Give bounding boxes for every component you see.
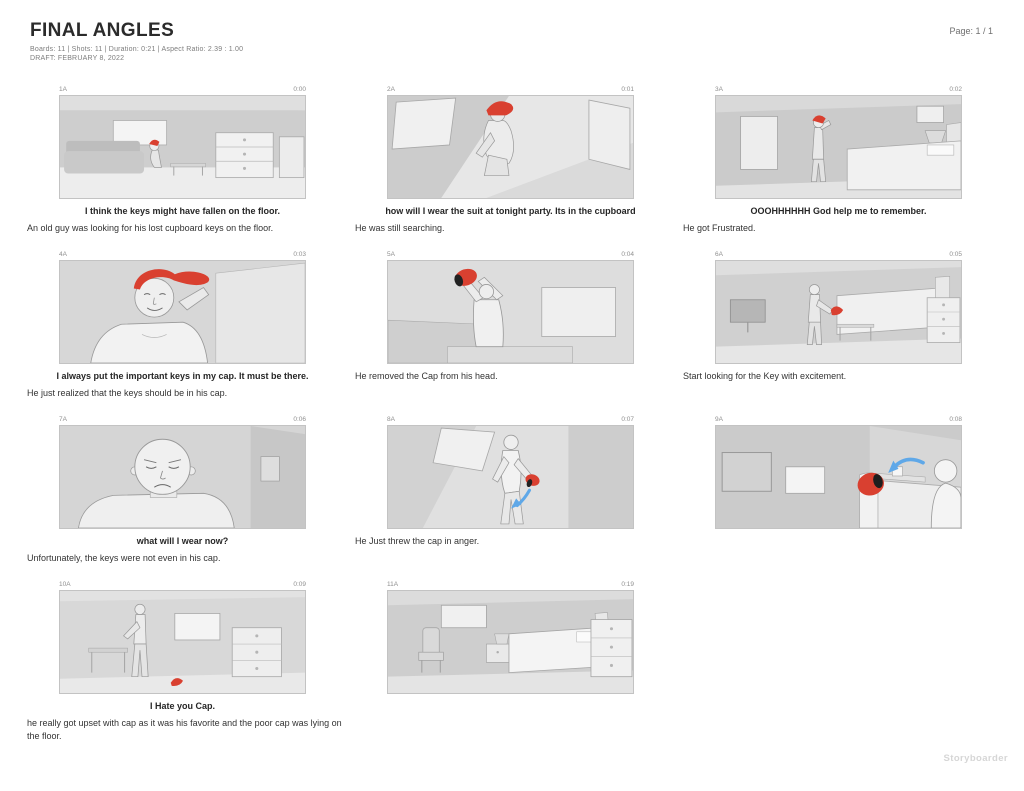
board-metadata: Boards: 11 | Shots: 11 | Duration: 0:21 …: [30, 46, 243, 53]
shot-timecode: 0:07: [621, 416, 634, 423]
board-1a: 1A 0:00: [27, 86, 355, 251]
page-number: Page: 1 / 1: [949, 26, 993, 36]
shot-label: 1A: [59, 86, 67, 93]
dialogue-text: I think the keys might have fallen on th…: [27, 206, 338, 216]
page-header: FINAL ANGLES Boards: 11 | Shots: 11 | Du…: [30, 20, 243, 62]
storyboard-frame: [387, 425, 634, 529]
frame-drawing-looking-for-key: [716, 261, 961, 363]
frame-drawing-closeup-cap: [60, 261, 305, 363]
shot-timecode: 0:01: [621, 86, 634, 93]
board-5a: 5A 0:04 He removed the Cap from his head…: [355, 251, 683, 416]
storyboard-frame: [59, 95, 306, 199]
shot-timecode: 0:08: [949, 416, 962, 423]
board-head: 4A 0:03: [59, 251, 306, 260]
board-head: 2A 0:01: [387, 86, 634, 95]
board-4a: 4A 0:03 I always put the important keys …: [27, 251, 355, 416]
action-text: Start looking for the Key with excitemen…: [683, 370, 1005, 383]
board-head: 10A 0:09: [59, 581, 306, 590]
dialogue-text: I always put the important keys in my ca…: [27, 371, 338, 381]
board-head: 6A 0:05: [715, 251, 962, 260]
storyboard-grid: 1A 0:00: [27, 86, 1011, 746]
shot-label: 3A: [715, 86, 723, 93]
shot-label: 6A: [715, 251, 723, 258]
board-6a: 6A 0:05: [683, 251, 1011, 416]
action-text: He just realized that the keys should be…: [27, 387, 349, 400]
shot-label: 11A: [387, 581, 398, 588]
frame-drawing-living-room: [60, 96, 305, 198]
shot-label: 10A: [59, 581, 71, 588]
action-text: Unfortunately, the keys were not even in…: [27, 552, 349, 565]
board-9a: 9A 0:08: [683, 416, 1011, 581]
frame-drawing-removing-cap: [388, 261, 633, 363]
shot-timecode: 0:03: [293, 251, 306, 258]
board-head: 8A 0:07: [387, 416, 634, 425]
board-head: 1A 0:00: [59, 86, 306, 95]
board-3a: 3A 0:02 OOOHHHHHH God help: [683, 86, 1011, 251]
storyboard-frame: [387, 260, 634, 364]
shot-timecode: 0:00: [293, 86, 306, 93]
board-head: 7A 0:06: [59, 416, 306, 425]
dialogue-text: OOOHHHHHH God help me to remember.: [683, 206, 994, 216]
storyboard-frame: [715, 95, 962, 199]
action-text: He got Frustrated.: [683, 222, 1005, 235]
shot-label: 2A: [387, 86, 395, 93]
board-8a: 8A 0:07 He Just threw the cap in anger.: [355, 416, 683, 581]
action-text: An old guy was looking for his lost cupb…: [27, 222, 349, 235]
storyboard-frame: [59, 590, 306, 694]
frame-drawing-throwing-cap: [388, 426, 633, 528]
board-11a: 11A 0:19: [355, 581, 683, 746]
frame-drawing-empty-room: [388, 591, 633, 693]
board-head: 3A 0:02: [715, 86, 962, 95]
board-10a: 10A 0:09 I Hate y: [27, 581, 355, 746]
dialogue-text: how will I wear the suit at tonight part…: [355, 206, 666, 216]
frame-drawing-searching: [388, 96, 633, 198]
storyboard-frame: [715, 425, 962, 529]
frame-drawing-cap-on-floor: [60, 591, 305, 693]
dialogue-text: what will I wear now?: [27, 536, 338, 546]
action-text: he really got upset with cap as it was h…: [27, 717, 349, 742]
shot-timecode: 0:04: [621, 251, 634, 258]
shot-label: 9A: [715, 416, 723, 423]
shot-timecode: 0:05: [949, 251, 962, 258]
board-head: 9A 0:08: [715, 416, 962, 425]
board-head: 5A 0:04: [387, 251, 634, 260]
shot-timecode: 0:02: [949, 86, 962, 93]
draft-date: DRAFT: FEBRUARY 8, 2022: [30, 55, 243, 62]
dialogue-text: I Hate you Cap.: [27, 701, 338, 711]
storyboard-frame: [59, 425, 306, 529]
action-text: He was still searching.: [355, 222, 677, 235]
storyboard-frame: [715, 260, 962, 364]
board-2a: 2A 0:01 how will I wear the suit at toni…: [355, 86, 683, 251]
shot-label: 4A: [59, 251, 67, 258]
frame-drawing-bedroom-frustrated: [716, 96, 961, 198]
storyboard-frame: [387, 95, 634, 199]
action-text: He Just threw the cap in anger.: [355, 535, 677, 548]
shot-timecode: 0:09: [293, 581, 306, 588]
action-text: He removed the Cap from his head.: [355, 370, 677, 383]
shot-label: 7A: [59, 416, 67, 423]
shot-timecode: 0:06: [293, 416, 306, 423]
shot-timecode: 0:19: [621, 581, 634, 588]
shot-label: 5A: [387, 251, 395, 258]
board-7a: 7A 0:06 what will I wear now?: [27, 416, 355, 581]
storyboard-frame: [59, 260, 306, 364]
board-head: 11A 0:19: [387, 581, 634, 590]
shot-label: 8A: [387, 416, 395, 423]
page-title: FINAL ANGLES: [30, 20, 243, 42]
storyboard-frame: [387, 590, 634, 694]
frame-drawing-sad-closeup: [60, 426, 305, 528]
storyboarder-watermark: Storyboarder: [944, 753, 1008, 764]
frame-drawing-cap-landed: [716, 426, 961, 528]
